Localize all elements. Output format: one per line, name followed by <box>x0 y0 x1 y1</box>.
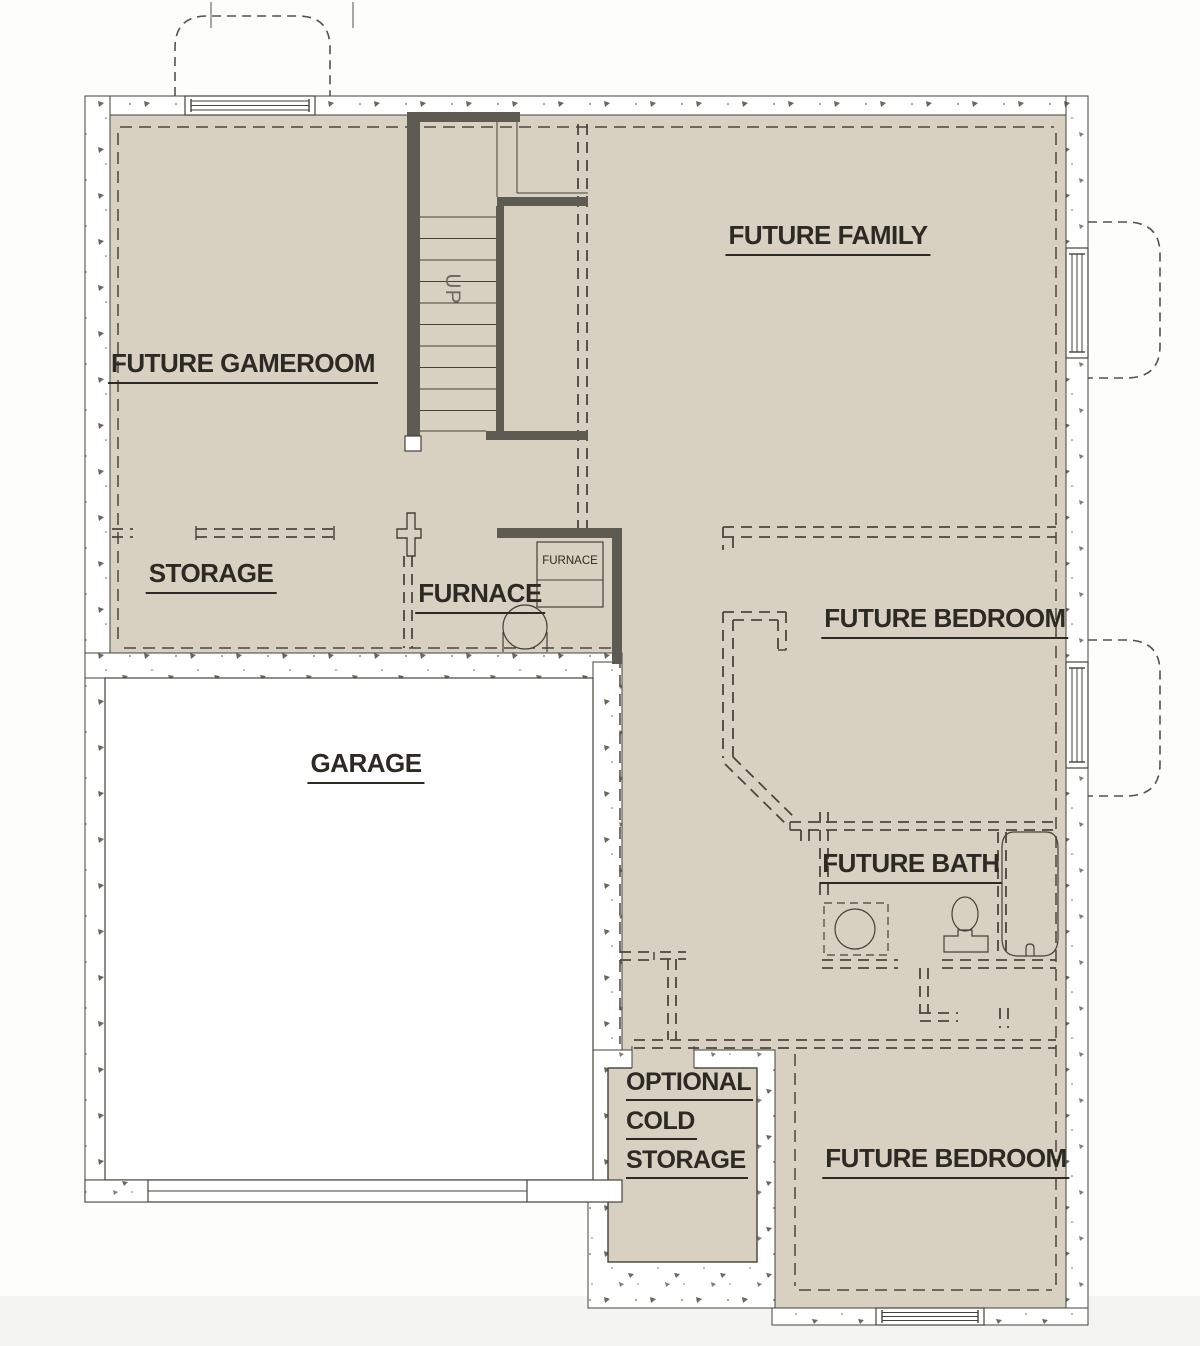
label-storage: STORAGE <box>146 558 277 594</box>
window-right-upper <box>1066 248 1088 358</box>
label-garage: GARAGE <box>307 748 424 784</box>
window-top <box>185 96 315 115</box>
label-furnace-room: FURNACE <box>415 578 545 614</box>
wall-storage-garage <box>85 653 622 678</box>
label-furnace-unit: FURNACE <box>542 555 598 567</box>
window-well-right-upper <box>1088 222 1160 378</box>
window-right-lower <box>1066 662 1088 768</box>
window-well-top <box>175 16 330 96</box>
wall-left <box>85 96 110 658</box>
label-optional-cold-storage: OPTIONAL COLD STORAGE <box>626 1068 753 1185</box>
label-stairs-up: UP <box>440 273 464 304</box>
floor-plan-canvas: FUTURE GAMEROOM FUTURE FAMILY STORAGE FU… <box>0 0 1200 1346</box>
label-future-family: FUTURE FAMILY <box>725 220 930 256</box>
window-bedroom-lower <box>876 1308 984 1325</box>
label-future-bedroom-mid: FUTURE BEDROOM <box>821 603 1068 639</box>
label-future-bath: FUTURE BATH <box>819 848 1002 884</box>
wall-garage-left <box>85 658 105 1202</box>
stair-newel-post <box>405 436 421 451</box>
centerline-ticks <box>211 2 353 28</box>
cold-storage-doorway <box>632 1046 694 1070</box>
label-future-gameroom: FUTURE GAMEROOM <box>108 348 378 384</box>
wall-garage-right <box>593 662 622 1052</box>
window-well-right-lower <box>1088 640 1160 796</box>
label-future-bedroom-lower: FUTURE BEDROOM <box>822 1143 1069 1179</box>
furnace-unit <box>537 542 603 607</box>
